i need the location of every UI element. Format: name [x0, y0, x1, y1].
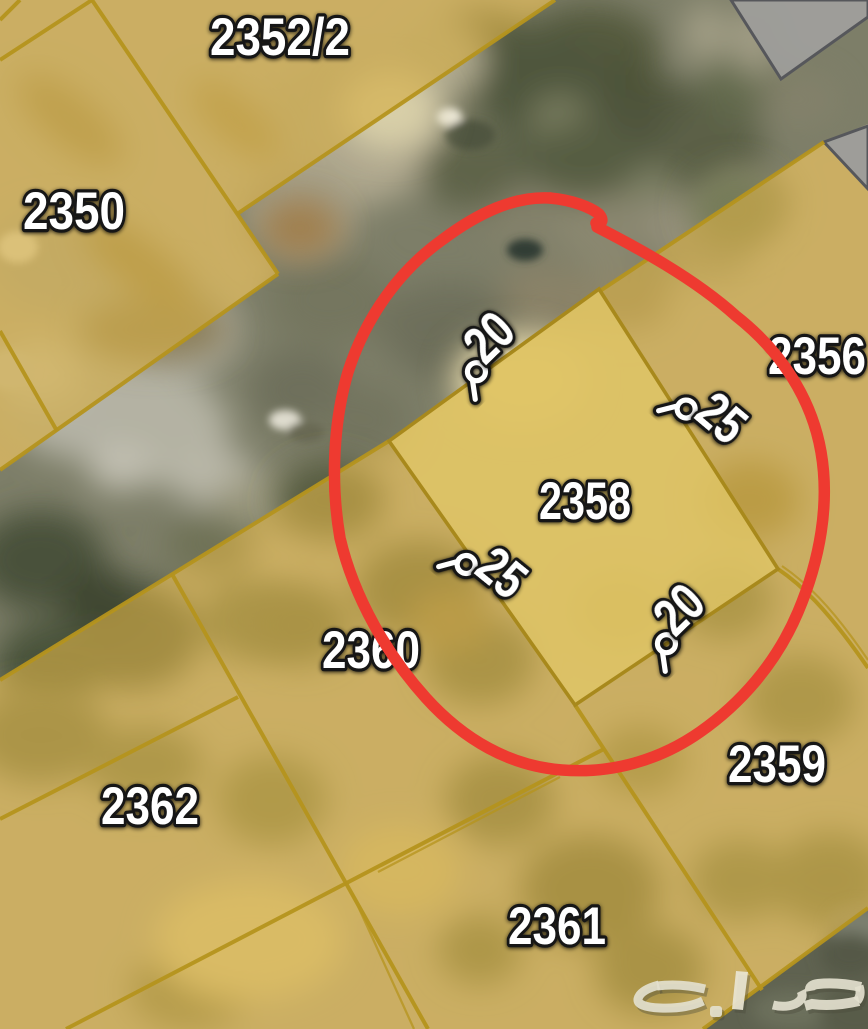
svg-text:2350: 2350: [23, 182, 125, 241]
svg-text:2358: 2358: [539, 472, 631, 531]
svg-text:2361: 2361: [508, 897, 606, 956]
svg-text:2362: 2362: [101, 777, 199, 836]
svg-text:2359: 2359: [728, 735, 826, 794]
svg-text:2352/2: 2352/2: [210, 8, 350, 67]
